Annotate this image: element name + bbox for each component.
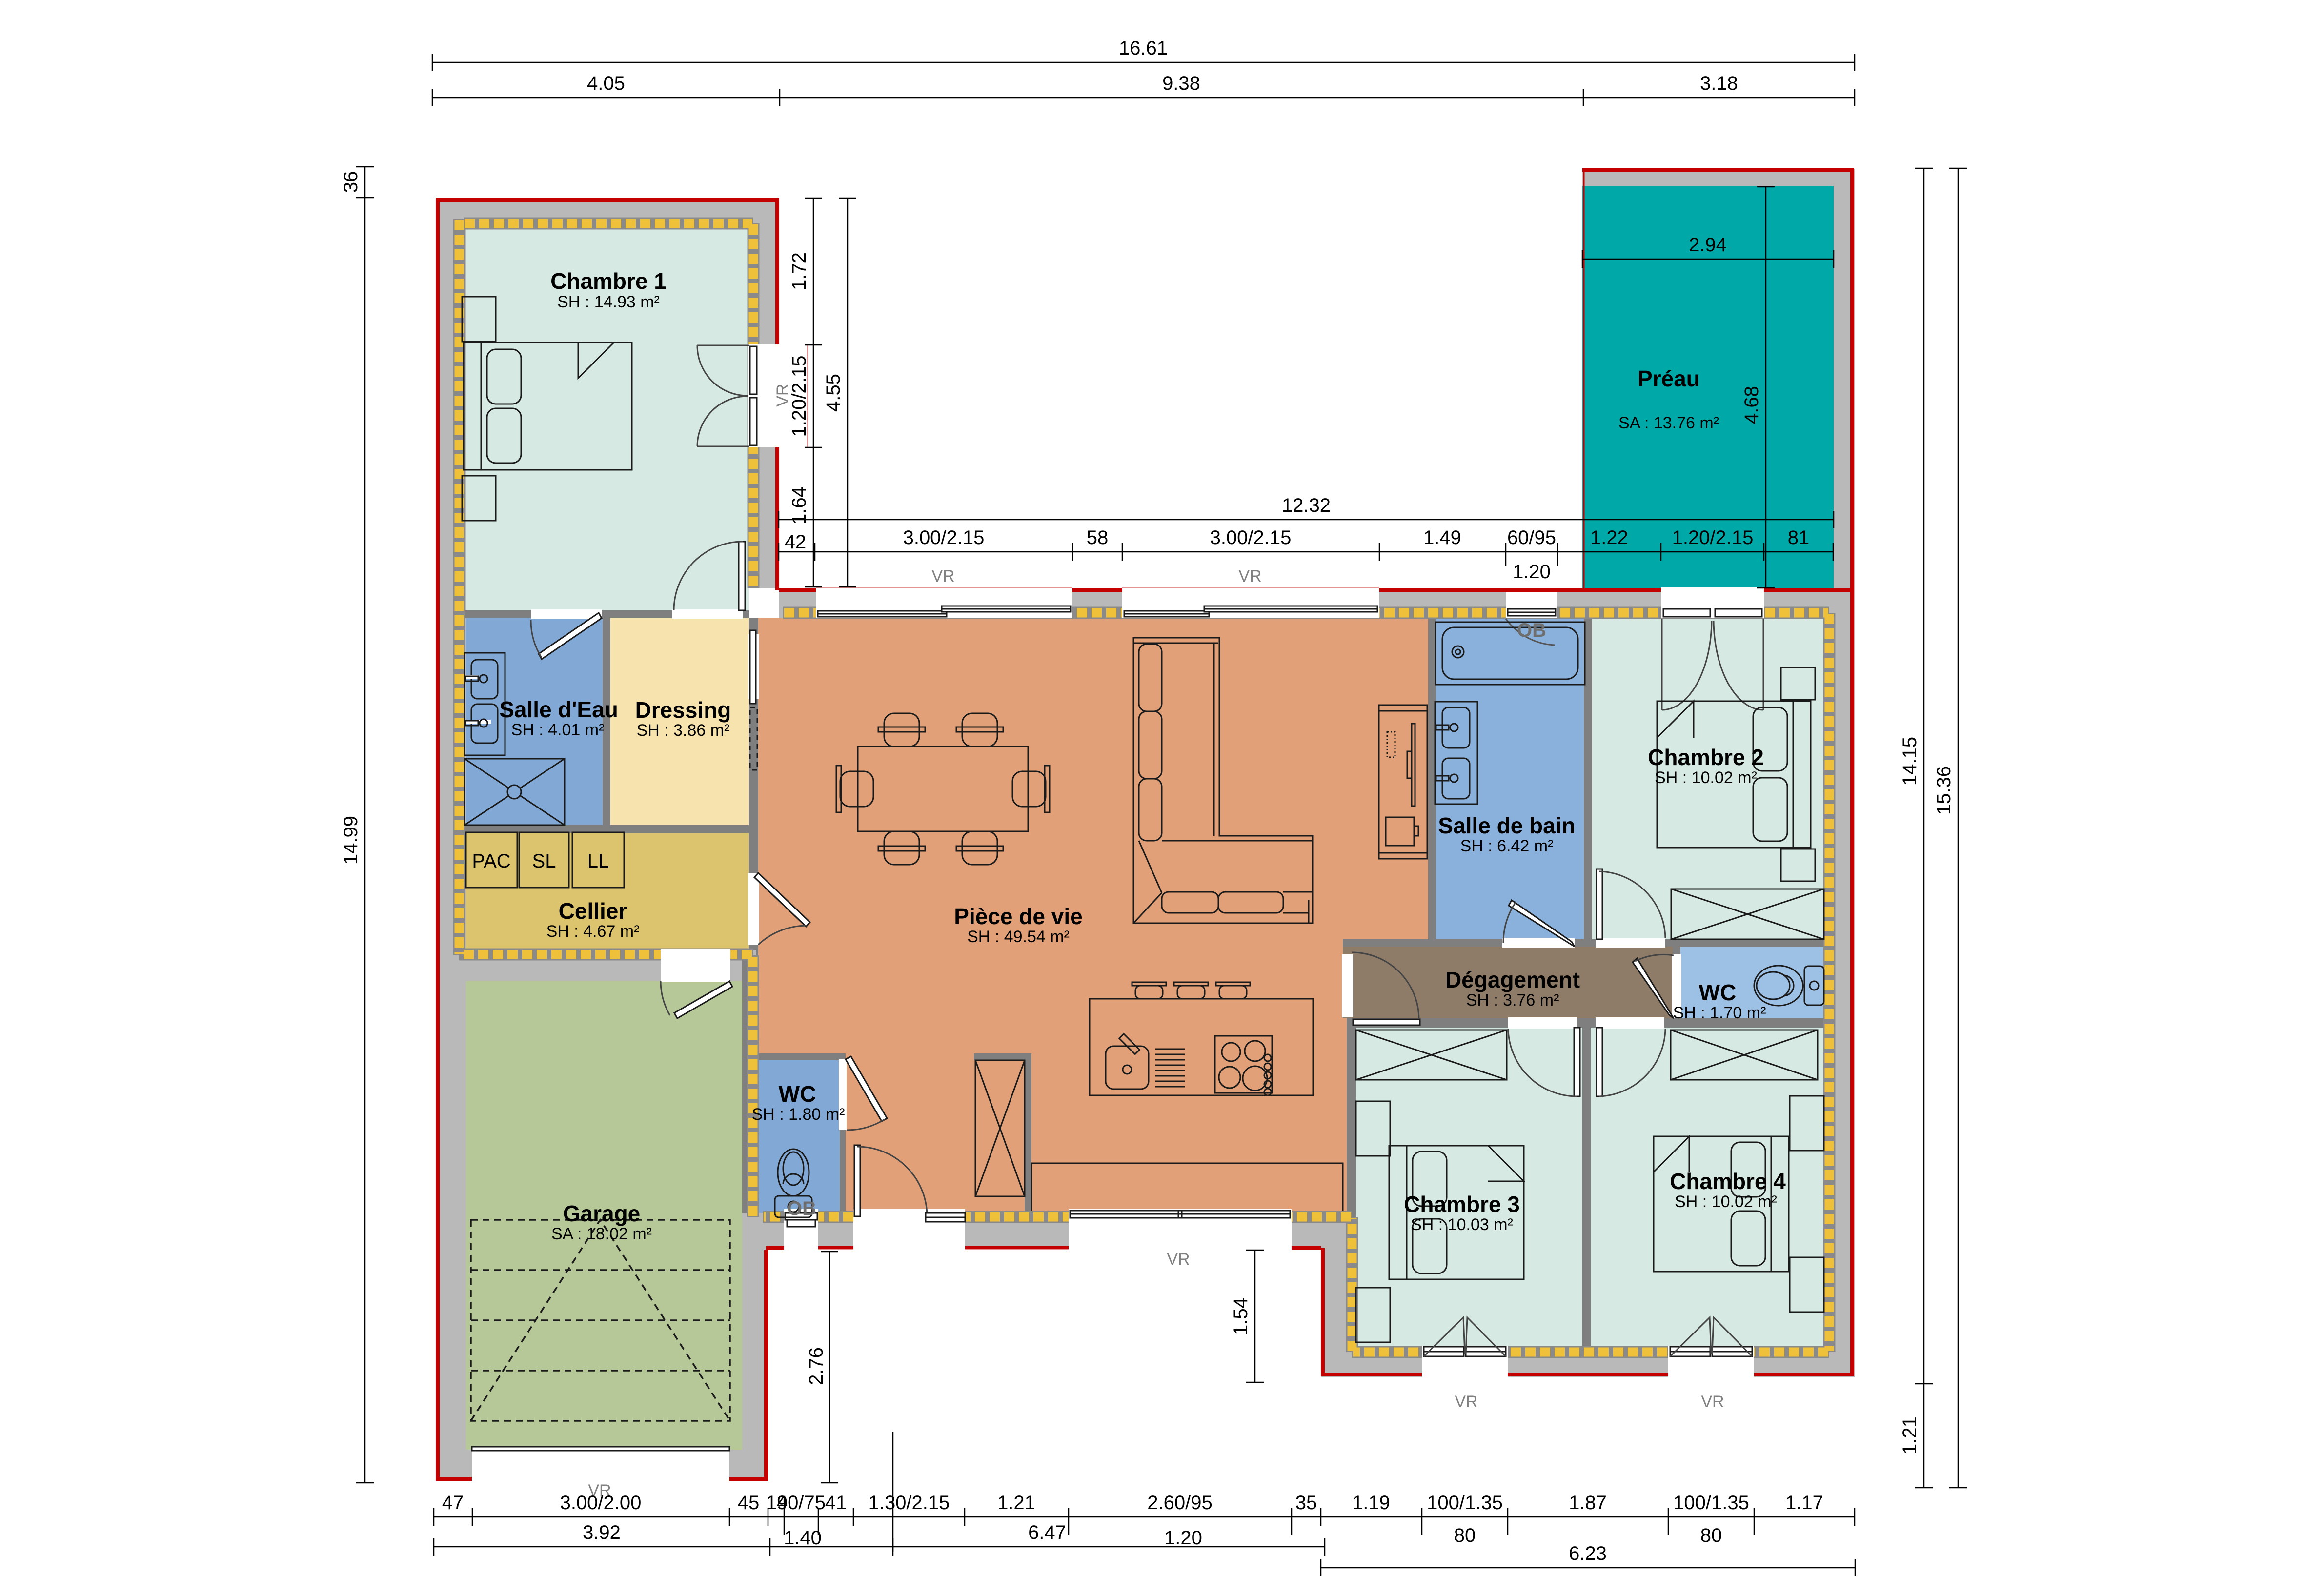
svg-text:1.87: 1.87 bbox=[1569, 1492, 1607, 1514]
svg-text:PAC: PAC bbox=[472, 850, 510, 872]
svg-text:OB: OB bbox=[787, 1198, 816, 1219]
svg-text:3.00/2.15: 3.00/2.15 bbox=[1210, 527, 1292, 548]
svg-text:36: 36 bbox=[340, 171, 362, 193]
svg-text:Cellier: Cellier bbox=[559, 898, 627, 924]
svg-text:1.20: 1.20 bbox=[1164, 1527, 1202, 1549]
svg-text:80: 80 bbox=[1700, 1525, 1722, 1546]
svg-text:58: 58 bbox=[1087, 527, 1109, 548]
svg-text:SA : 18.02 m²: SA : 18.02 m² bbox=[551, 1225, 652, 1243]
svg-text:6.47: 6.47 bbox=[1028, 1522, 1066, 1543]
svg-text:4.55: 4.55 bbox=[823, 374, 844, 412]
svg-text:4.05: 4.05 bbox=[587, 73, 625, 94]
svg-text:2.76: 2.76 bbox=[806, 1347, 827, 1385]
svg-text:SH : 3.76 m²: SH : 3.76 m² bbox=[1466, 991, 1559, 1010]
svg-text:VR: VR bbox=[1701, 1393, 1724, 1411]
svg-text:14.15: 14.15 bbox=[1899, 737, 1921, 786]
svg-text:6.23: 6.23 bbox=[1569, 1543, 1607, 1564]
svg-text:SH : 4.67 m²: SH : 4.67 m² bbox=[546, 922, 640, 941]
svg-text:1.21: 1.21 bbox=[997, 1492, 1035, 1514]
svg-text:100/1.35: 100/1.35 bbox=[1427, 1492, 1503, 1514]
svg-text:VR: VR bbox=[931, 567, 954, 586]
svg-text:SH : 6.42 m²: SH : 6.42 m² bbox=[1460, 837, 1554, 855]
svg-text:35: 35 bbox=[1295, 1492, 1317, 1514]
svg-text:1.17: 1.17 bbox=[1785, 1492, 1823, 1514]
svg-text:3.18: 3.18 bbox=[1700, 73, 1738, 94]
svg-text:9.38: 9.38 bbox=[1162, 73, 1200, 94]
svg-text:WC: WC bbox=[1699, 980, 1737, 1005]
svg-text:VR: VR bbox=[1455, 1393, 1477, 1411]
svg-text:1.49: 1.49 bbox=[1423, 527, 1461, 548]
svg-text:81: 81 bbox=[1788, 527, 1810, 548]
svg-text:Chambre 2: Chambre 2 bbox=[1648, 745, 1764, 770]
svg-text:1.30/2.15: 1.30/2.15 bbox=[869, 1492, 950, 1514]
svg-text:16.61: 16.61 bbox=[1119, 38, 1168, 59]
svg-text:SA : 13.76 m²: SA : 13.76 m² bbox=[1618, 414, 1719, 432]
svg-text:Salle de bain: Salle de bain bbox=[1438, 813, 1575, 838]
svg-text:42: 42 bbox=[785, 531, 807, 553]
svg-text:3.00/2.00: 3.00/2.00 bbox=[560, 1492, 642, 1514]
svg-text:Chambre 1: Chambre 1 bbox=[550, 268, 667, 294]
svg-text:60/95: 60/95 bbox=[1507, 527, 1556, 548]
svg-text:SH : 10.02 m²: SH : 10.02 m² bbox=[1655, 768, 1757, 787]
svg-text:VR: VR bbox=[1167, 1250, 1190, 1269]
svg-text:4.68: 4.68 bbox=[1741, 386, 1762, 424]
svg-text:Chambre 3: Chambre 3 bbox=[1404, 1192, 1520, 1217]
svg-text:Chambre 4: Chambre 4 bbox=[1670, 1169, 1786, 1194]
svg-text:Préau: Préau bbox=[1638, 366, 1700, 391]
svg-text:80: 80 bbox=[1454, 1525, 1476, 1546]
svg-text:41: 41 bbox=[825, 1492, 847, 1514]
svg-text:SH : 10.03 m²: SH : 10.03 m² bbox=[1411, 1215, 1513, 1234]
svg-text:SH : 1.80 m²: SH : 1.80 m² bbox=[752, 1105, 845, 1124]
svg-text:1.72: 1.72 bbox=[789, 252, 810, 290]
svg-text:3.00/2.15: 3.00/2.15 bbox=[903, 527, 985, 548]
svg-text:14.99: 14.99 bbox=[340, 816, 362, 865]
svg-text:OB: OB bbox=[1517, 620, 1546, 641]
svg-text:40/75: 40/75 bbox=[777, 1492, 826, 1514]
svg-text:1.22: 1.22 bbox=[1590, 527, 1628, 548]
svg-text:LL: LL bbox=[587, 850, 609, 872]
svg-text:2.94: 2.94 bbox=[1689, 234, 1727, 256]
svg-text:Garage: Garage bbox=[563, 1201, 641, 1226]
svg-text:Salle d'Eau: Salle d'Eau bbox=[499, 697, 618, 722]
svg-text:Dégagement: Dégagement bbox=[1445, 967, 1580, 992]
svg-text:15.36: 15.36 bbox=[1933, 766, 1955, 815]
svg-text:SH : 49.54 m²: SH : 49.54 m² bbox=[967, 928, 1070, 946]
svg-text:SL: SL bbox=[532, 850, 556, 872]
svg-text:47: 47 bbox=[442, 1492, 464, 1514]
svg-text:1.19: 1.19 bbox=[1352, 1492, 1390, 1514]
svg-text:SH : 3.86 m²: SH : 3.86 m² bbox=[637, 721, 730, 740]
svg-text:SH : 1.70 m²: SH : 1.70 m² bbox=[1673, 1004, 1766, 1022]
svg-text:12.32: 12.32 bbox=[1282, 495, 1331, 516]
svg-text:1.20: 1.20 bbox=[1513, 561, 1551, 583]
svg-text:1.40: 1.40 bbox=[784, 1527, 822, 1549]
svg-text:1.20/2.15: 1.20/2.15 bbox=[1672, 527, 1754, 548]
svg-text:1.54: 1.54 bbox=[1230, 1297, 1252, 1335]
svg-text:WC: WC bbox=[779, 1081, 816, 1107]
svg-text:1.20/2.15: 1.20/2.15 bbox=[789, 356, 810, 437]
svg-text:45: 45 bbox=[738, 1492, 760, 1514]
svg-text:Dressing: Dressing bbox=[635, 697, 731, 723]
svg-text:2.60/95: 2.60/95 bbox=[1147, 1492, 1212, 1514]
svg-text:Pièce de vie: Pièce de vie bbox=[954, 904, 1082, 929]
svg-text:1.64: 1.64 bbox=[789, 486, 810, 525]
svg-text:VR: VR bbox=[1238, 567, 1261, 586]
svg-text:100/1.35: 100/1.35 bbox=[1673, 1492, 1749, 1514]
svg-text:1.21: 1.21 bbox=[1899, 1416, 1921, 1455]
svg-text:SH : 10.02 m²: SH : 10.02 m² bbox=[1675, 1192, 1777, 1211]
svg-text:SH : 14.93 m²: SH : 14.93 m² bbox=[557, 293, 660, 311]
svg-text:SH : 4.01 m²: SH : 4.01 m² bbox=[511, 721, 605, 739]
svg-text:3.92: 3.92 bbox=[583, 1522, 621, 1543]
